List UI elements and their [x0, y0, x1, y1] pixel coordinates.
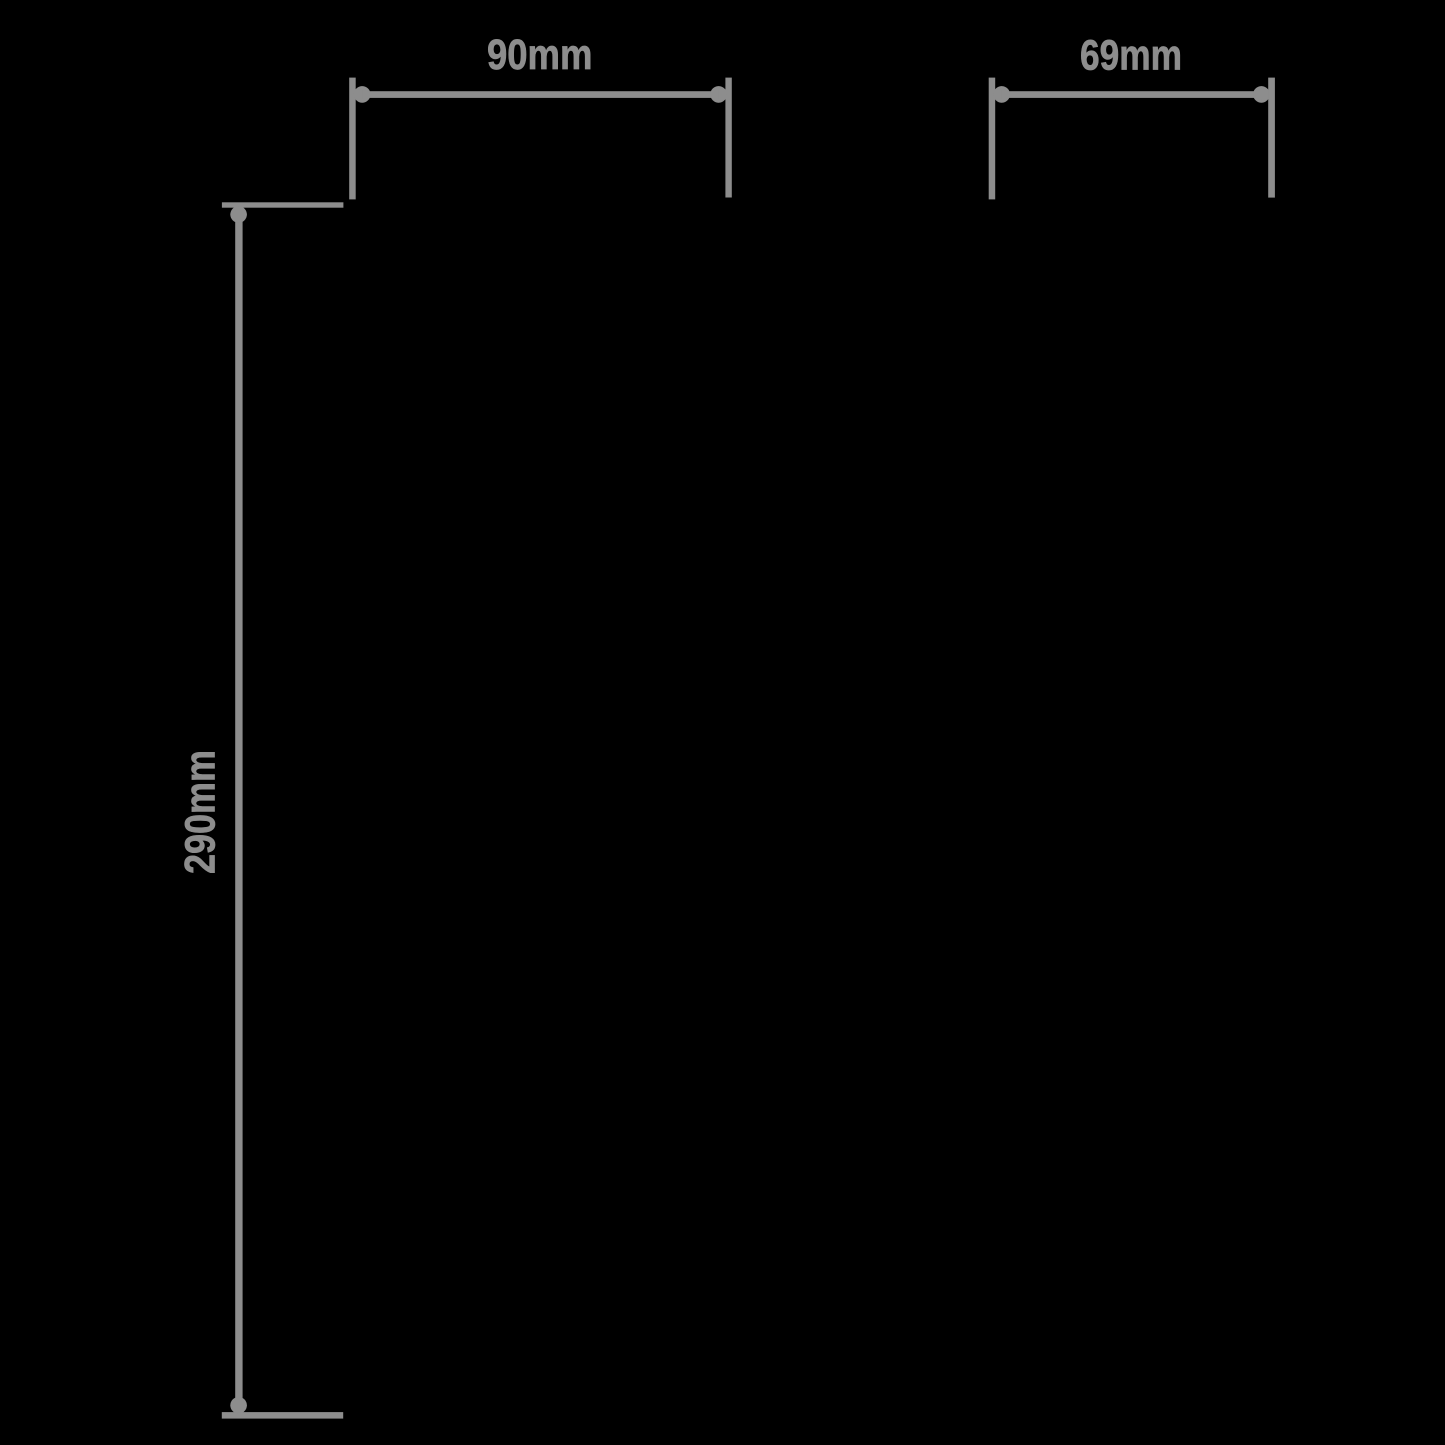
svg-text:290mm: 290mm — [177, 750, 225, 874]
svg-text:90mm: 90mm — [487, 31, 593, 79]
svg-text:69mm: 69mm — [1080, 32, 1182, 80]
